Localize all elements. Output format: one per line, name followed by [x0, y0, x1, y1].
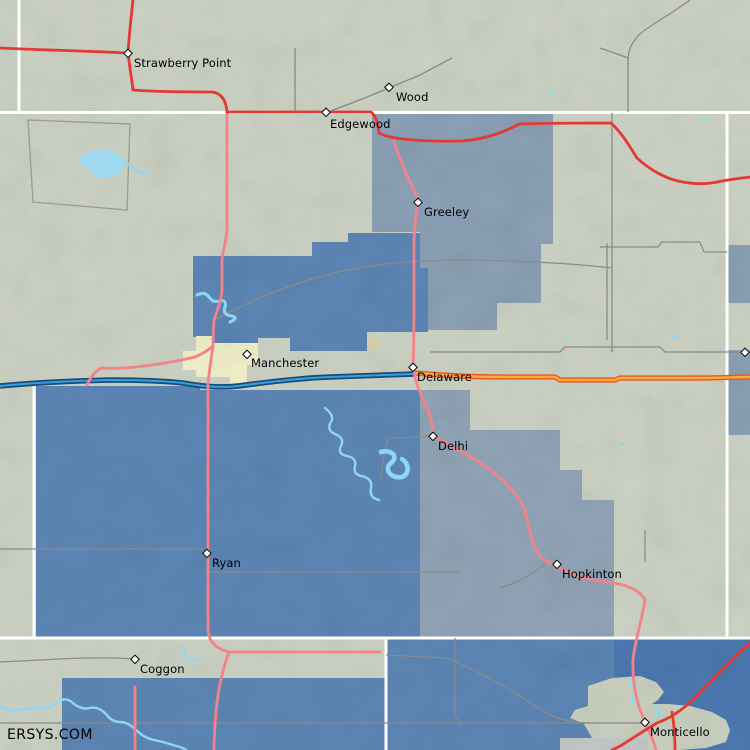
pond — [564, 337, 569, 340]
town-label: Wood — [396, 91, 428, 104]
town-label: Coggon — [140, 663, 185, 676]
town-label: Delhi — [438, 440, 468, 453]
town-label: Manchester — [251, 357, 319, 370]
town-label: Delaware — [417, 371, 472, 384]
town-label: Ryan — [212, 557, 241, 570]
pond — [672, 335, 677, 338]
town-label: Edgewood — [330, 118, 391, 131]
map-artwork — [0, 0, 750, 750]
town-label: Monticello — [650, 726, 710, 739]
pond — [620, 443, 625, 446]
attribution-text: ERSYS.COM — [7, 727, 93, 743]
town-label: Hopkinton — [562, 568, 622, 581]
map-canvas: Strawberry Point Wood Edgewood Greeley M… — [0, 0, 750, 750]
town-label: Greeley — [424, 206, 469, 219]
town-label: Strawberry Point — [134, 57, 231, 70]
pond — [701, 118, 706, 121]
pond — [551, 90, 556, 93]
